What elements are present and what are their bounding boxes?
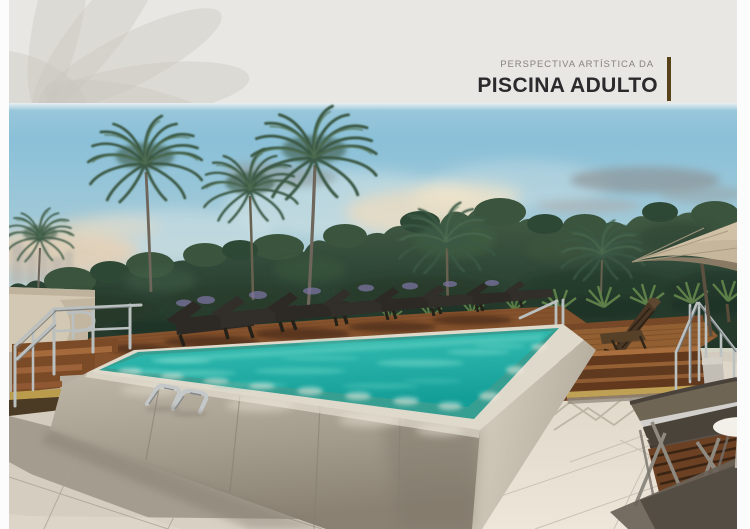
- svg-text:PISCINA ADULTO: PISCINA ADULTO: [477, 74, 658, 97]
- svg-text:PERSPECTIVA ARTÍSTICA DA: PERSPECTIVA ARTÍSTICA DA: [500, 59, 654, 70]
